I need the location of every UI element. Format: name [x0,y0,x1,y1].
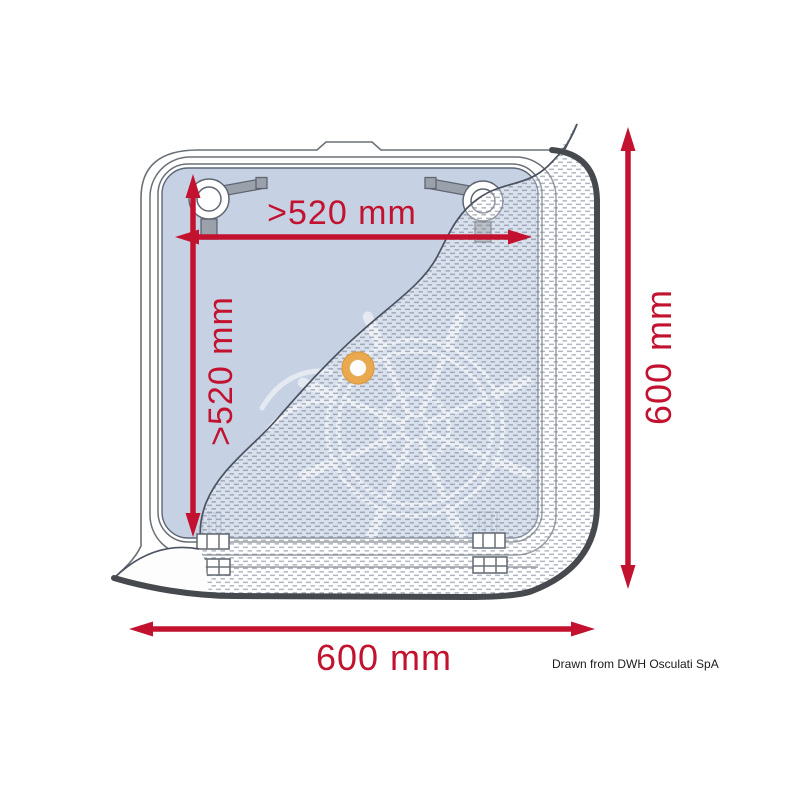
dimension-label-outer-height: 600 mm [637,257,681,457]
grommet-ring-icon [342,352,374,384]
dimension-label-inner-height: >520 mm [199,271,243,471]
attribution-text: Drawn from DWH Osculati SpA [552,657,719,671]
hatch-diagram-page: >520 mm >520 mm 600 mm 600 mm Drawn from… [0,0,800,800]
dimension-label-outer-width: 600 mm [284,636,484,680]
dimension-label-inner-width: >520 mm [242,191,442,235]
